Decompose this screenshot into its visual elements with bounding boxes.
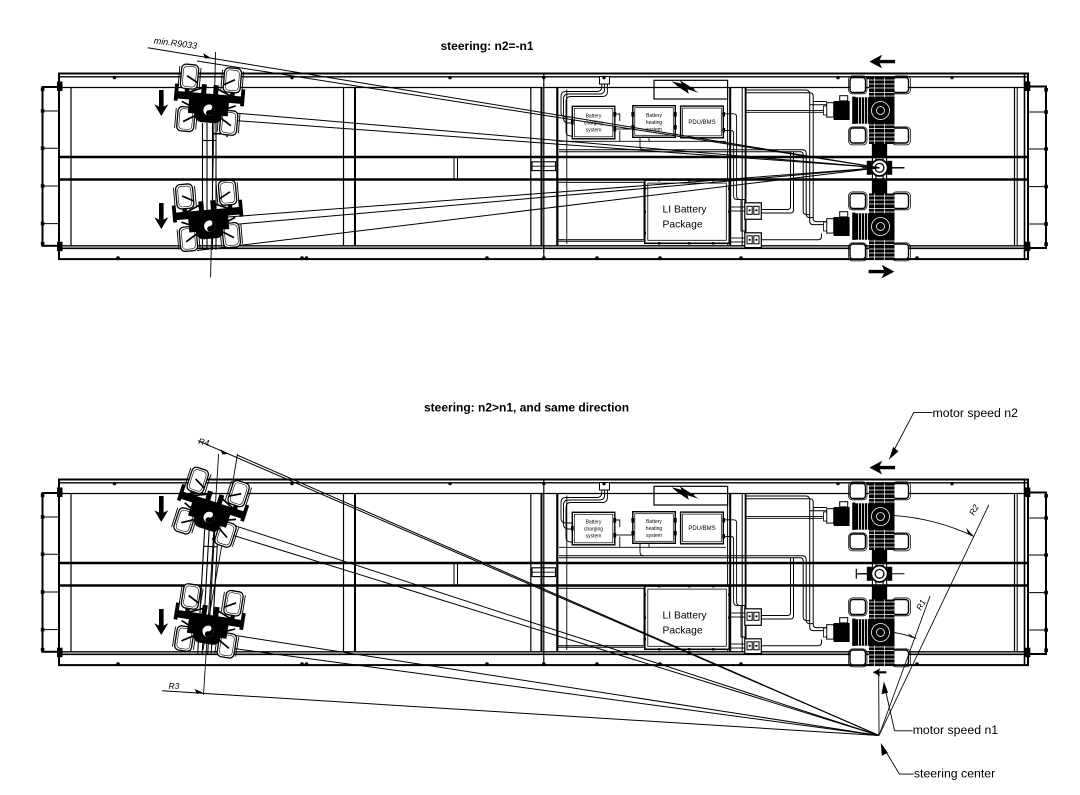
svg-text:steering: n2>n1, and same dir: steering: n2>n1, and same direction: [424, 401, 629, 415]
svg-text:R1: R1: [914, 597, 928, 612]
svg-text:heating: heating: [646, 120, 663, 126]
svg-text:min.R9033: min.R9033: [153, 36, 197, 51]
svg-text:R2: R2: [967, 502, 981, 517]
svg-text:system: system: [586, 128, 602, 134]
svg-text:R3: R3: [169, 681, 180, 691]
svg-text:Battery: Battery: [586, 114, 602, 120]
svg-text:R4: R4: [198, 436, 211, 448]
svg-text:Battery: Battery: [646, 113, 662, 119]
svg-text:LI Battery: LI Battery: [663, 204, 708, 215]
svg-text:motor speed n1: motor speed n1: [913, 723, 999, 737]
svg-text:steering center: steering center: [914, 767, 995, 781]
svg-text:steering: n2=-n1: steering: n2=-n1: [441, 39, 534, 53]
svg-text:Package: Package: [663, 219, 703, 230]
svg-text:PDU/BMS: PDU/BMS: [688, 120, 715, 126]
svg-text:motor speed n2: motor speed n2: [933, 406, 1019, 420]
